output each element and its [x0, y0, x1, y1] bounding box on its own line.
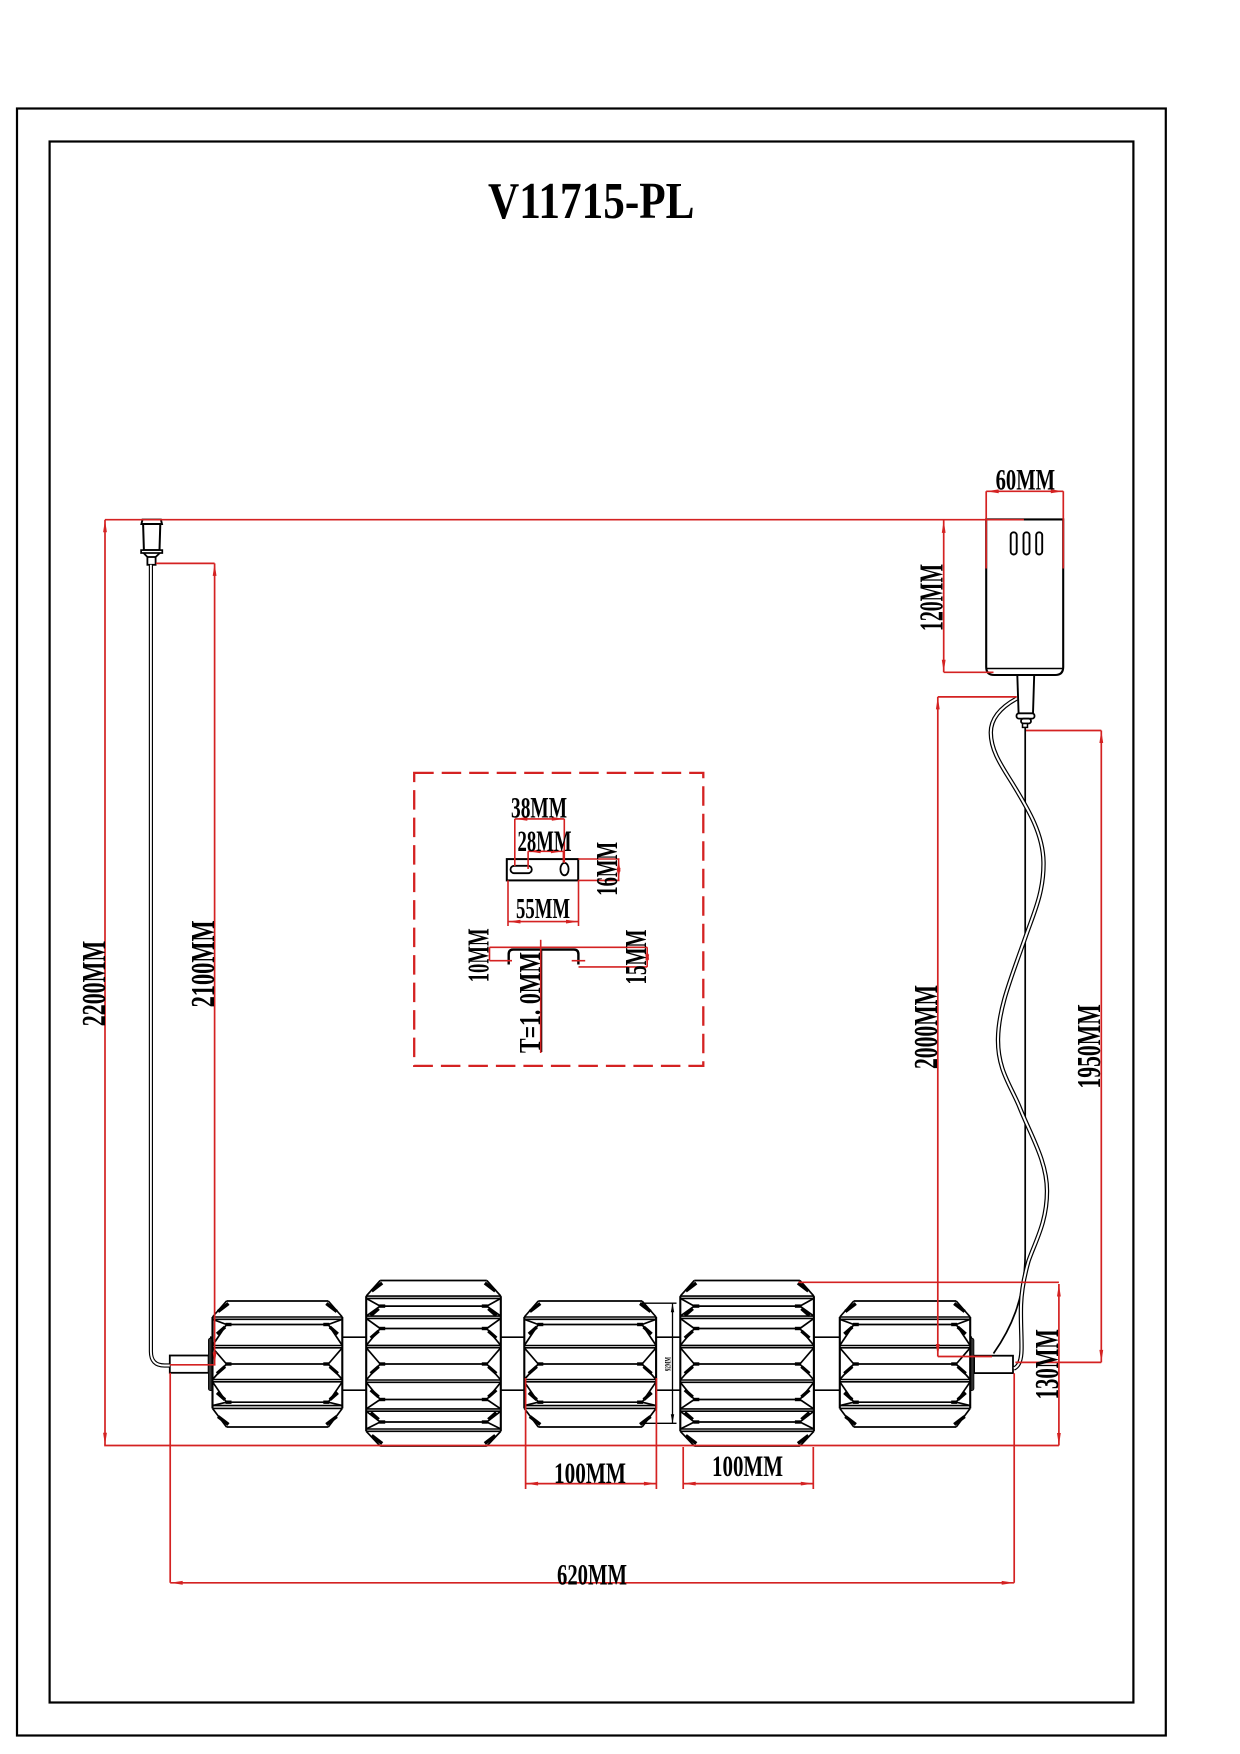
svg-text:1950MM: 1950MM [1071, 1004, 1108, 1088]
svg-text:92MM: 92MM [663, 1357, 673, 1371]
svg-text:120MM: 120MM [914, 564, 951, 631]
svg-text:38MM: 38MM [511, 792, 567, 825]
svg-text:55MM: 55MM [516, 893, 570, 925]
svg-text:620MM: 620MM [557, 1559, 627, 1592]
svg-text:2100MM: 2100MM [185, 920, 222, 1007]
svg-text:15MM: 15MM [618, 930, 653, 985]
svg-text:28MM: 28MM [518, 825, 572, 858]
svg-text:V11715-PL: V11715-PL [488, 173, 695, 230]
svg-text:100MM: 100MM [554, 1457, 626, 1490]
svg-text:2000MM: 2000MM [908, 985, 945, 1069]
svg-text:10MM: 10MM [460, 928, 495, 982]
svg-text:2200MM: 2200MM [76, 941, 113, 1027]
svg-text:T=1. 0MM: T=1. 0MM [512, 952, 547, 1053]
svg-text:60MM: 60MM [996, 464, 1056, 497]
svg-text:130MM: 130MM [1029, 1329, 1066, 1399]
svg-text:100MM: 100MM [712, 1450, 783, 1483]
svg-text:16MM: 16MM [589, 842, 624, 896]
